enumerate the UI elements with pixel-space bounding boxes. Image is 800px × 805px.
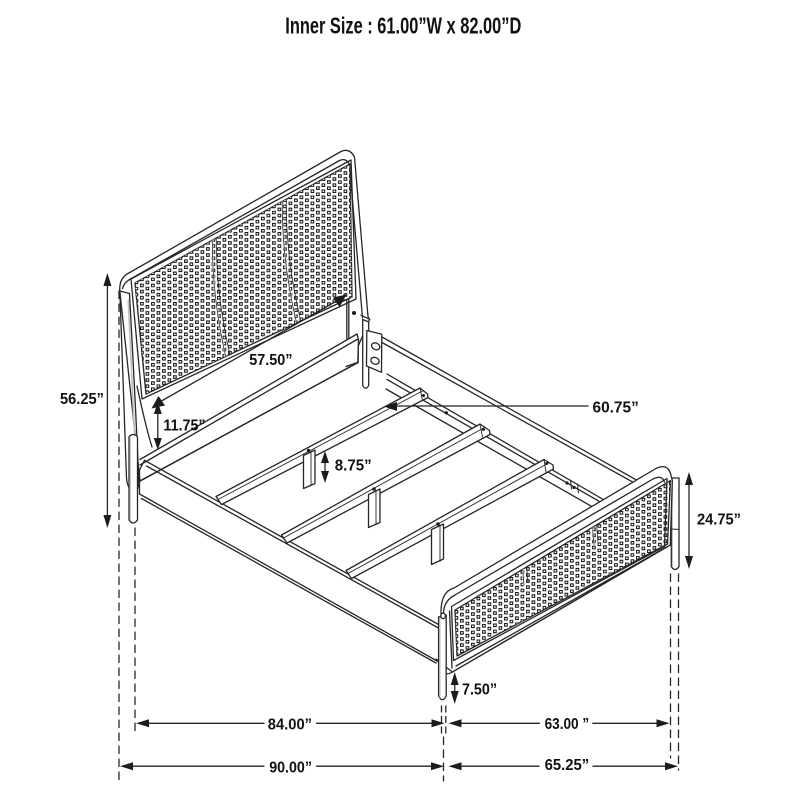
svg-text:90.00”: 90.00” xyxy=(269,760,312,777)
svg-text:8.75”: 8.75” xyxy=(335,458,372,475)
svg-text:63.00 ”: 63.00 ” xyxy=(545,716,590,733)
svg-text:Inner Size : 61.00”W x 82.00”D: Inner Size : 61.00”W x 82.00”D xyxy=(285,13,521,39)
svg-text:24.75”: 24.75” xyxy=(697,512,741,529)
svg-text:57.50”: 57.50” xyxy=(249,352,292,369)
svg-text:65.25”: 65.25” xyxy=(545,757,590,774)
svg-text:56.25”: 56.25” xyxy=(60,391,104,408)
svg-text:11.75”: 11.75” xyxy=(163,418,205,435)
svg-text:84.00”: 84.00” xyxy=(268,716,312,733)
svg-text:60.75”: 60.75” xyxy=(593,400,639,417)
svg-text:7.50”: 7.50” xyxy=(462,682,497,699)
